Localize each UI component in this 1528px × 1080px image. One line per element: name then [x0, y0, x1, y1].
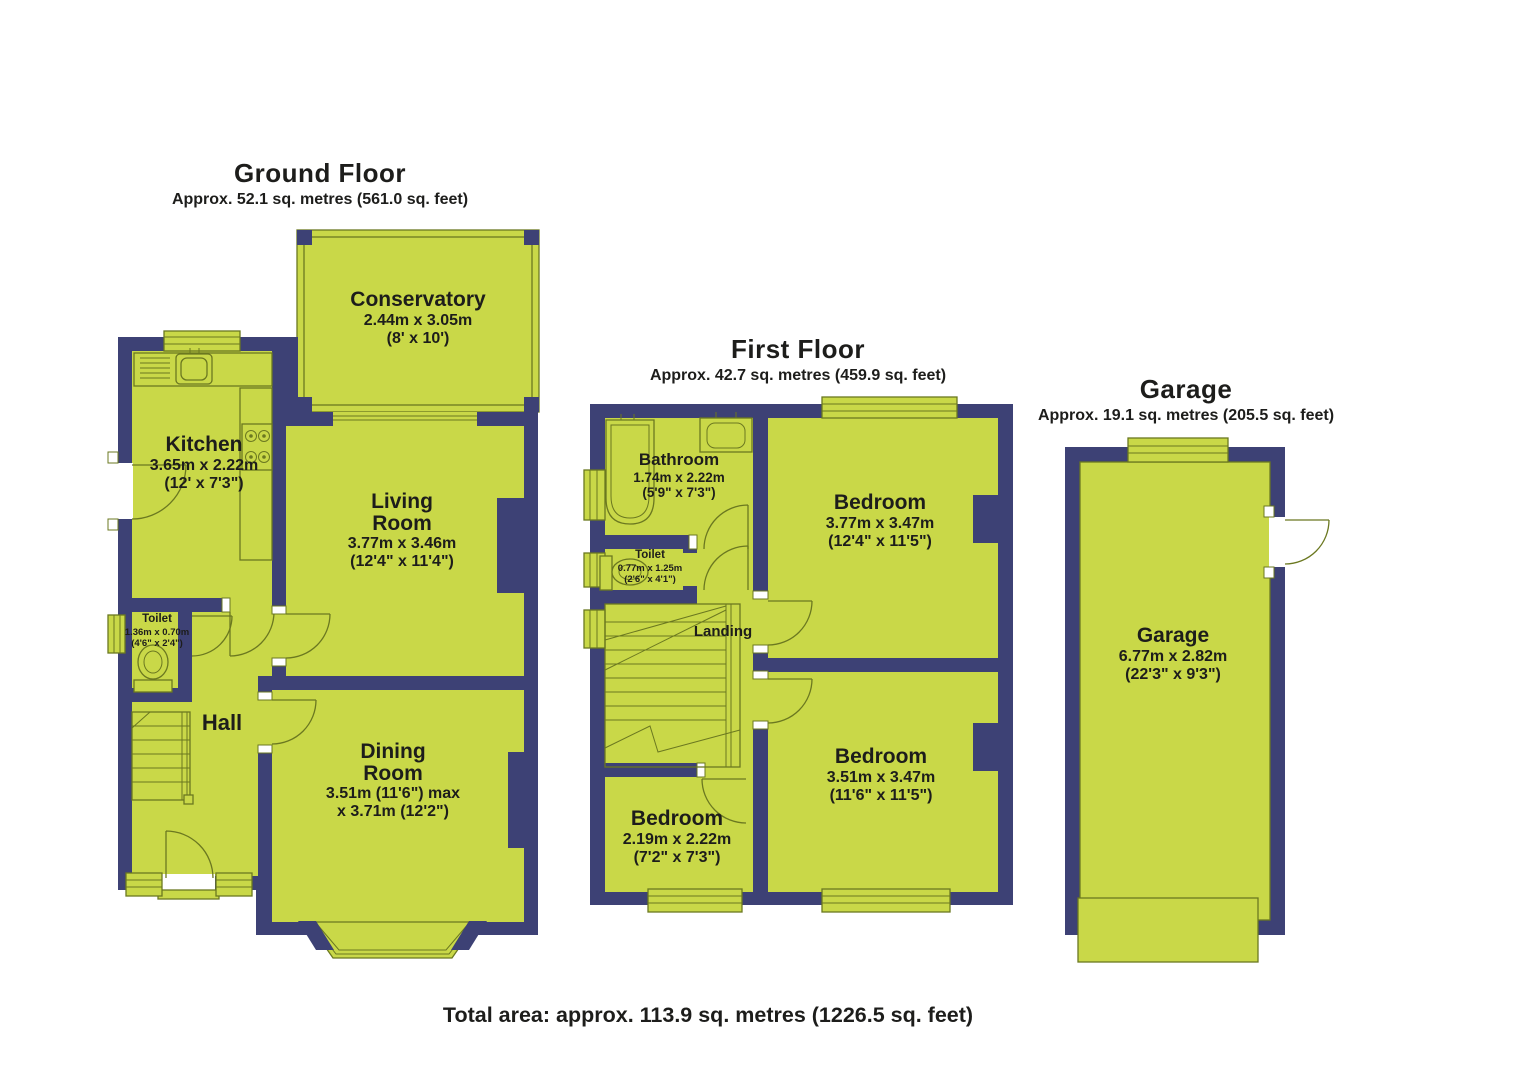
garage-plan [1065, 438, 1329, 962]
room-dimensions: 3.77m x 3.46m (12'4" x 11'4") [348, 535, 457, 571]
hall-front-window-left [126, 873, 162, 896]
bathroom-label: Bathroom 1.74m x 2.22m (5'9" x 7'3") [633, 451, 725, 500]
bedroom-rear-window [822, 889, 950, 912]
bedroom-front-chimney-breast [973, 495, 998, 543]
bedrooms-divider-wall [768, 658, 998, 672]
bedroom-rear-chimney-breast [973, 723, 998, 771]
garage-title: Garage Approx. 19.1 sq. metres (205.5 sq… [1038, 376, 1334, 425]
conservatory-label: Conservatory 2.44m x 3.05m (8' x 10') [350, 289, 485, 348]
dining-room-label: Dining Room 3.51m (11'6") max x 3.71m (1… [326, 741, 460, 822]
small-bedroom-top-wall [590, 763, 705, 777]
room-dimensions: 1.74m x 2.22m (5'9" x 7'3") [633, 470, 725, 501]
room-name: Hall [202, 712, 242, 735]
dining-room-chimney-breast [508, 752, 524, 848]
toilet-window [108, 615, 125, 653]
garage-room-label: Garage 6.77m x 2.82m (22'3" x 9'3") [1119, 625, 1228, 684]
toilet-label-ff: Toilet 0.77m x 1.25m (2'6" x 4'1") [618, 550, 682, 585]
bedroom-front-label: Bedroom 3.77m x 3.47m (12'4" x 11'5") [826, 492, 935, 551]
room-name: Kitchen [150, 434, 259, 456]
garage-main-door [1078, 898, 1258, 962]
total-area-text: Total area: approx. 113.9 sq. metres (12… [443, 1003, 973, 1028]
room-dimensions: 0.77m x 1.25m (2'6" x 4'1") [618, 563, 682, 585]
room-name: Landing [694, 624, 752, 639]
room-name: Bedroom [826, 492, 935, 514]
small-bedroom-window [648, 889, 742, 912]
bathroom-sink [700, 412, 752, 452]
landing-bedroom-divider-wall [753, 418, 768, 892]
room-name: Conservatory [350, 289, 485, 311]
dining-bay-window [298, 921, 487, 958]
garage-window [1128, 438, 1228, 462]
garage-interior [1080, 462, 1270, 920]
room-name: Living Room [348, 491, 457, 534]
kitchen-label: Kitchen 3.65m x 2.22m (12' x 7'3") [150, 434, 259, 493]
room-dimensions: 3.77m x 3.47m (12'4" x 11'5") [826, 515, 935, 551]
landing-label: Landing [694, 624, 752, 639]
plan-title-text: First Floor [650, 336, 946, 363]
room-name: Bedroom [827, 746, 936, 768]
plan-title-text: Ground Floor [172, 160, 468, 187]
toilet-label: Toilet 1.36m x 0.70m (4'6" x 2'4") [125, 614, 189, 649]
floorplan-canvas: Ground Floor Approx. 52.1 sq. metres (56… [0, 0, 1528, 1080]
hall-label: Hall [202, 712, 242, 735]
bedroom-small-label: Bedroom 2.19m x 2.22m (7'2" x 7'3") [623, 808, 732, 867]
toilet-bottom-wall-ff [598, 590, 697, 604]
room-dimensions: 2.19m x 2.22m (7'2" x 7'3") [623, 831, 732, 867]
ground-floor-title: Ground Floor Approx. 52.1 sq. metres (56… [172, 160, 468, 209]
landing-window [584, 610, 605, 648]
plan-subtitle-text: Approx. 52.1 sq. metres (561.0 sq. feet) [172, 190, 468, 209]
bedroom-front-window [822, 397, 957, 418]
room-dimensions: 6.77m x 2.82m (22'3" x 9'3") [1119, 648, 1228, 684]
room-dimensions: 3.51m x 3.47m (11'6" x 11'5") [827, 769, 936, 805]
plan-subtitle-text: Approx. 42.7 sq. metres (459.9 sq. feet) [650, 366, 946, 385]
plan-title-text: Garage [1038, 376, 1334, 403]
room-name: Bathroom [633, 451, 725, 469]
bedroom-rear-label: Bedroom 3.51m x 3.47m (11'6" x 11'5") [827, 746, 936, 805]
plan-subtitle-text: Approx. 19.1 sq. metres (205.5 sq. feet) [1038, 406, 1334, 425]
room-dimensions: 3.65m x 2.22m (12' x 7'3") [150, 457, 259, 493]
hall-front-window-right [216, 873, 252, 896]
room-name: Garage [1119, 625, 1228, 647]
room-name: Toilet [618, 550, 682, 562]
first-floor-title: First Floor Approx. 42.7 sq. metres (459… [650, 336, 946, 385]
room-name: Dining Room [326, 741, 460, 784]
room-dimensions: 3.51m (11'6") max x 3.71m (12'2") [326, 785, 460, 821]
room-dimensions: 1.36m x 0.70m (4'6" x 2'4") [125, 627, 189, 649]
room-dimensions: 2.44m x 3.05m (8' x 10') [350, 312, 485, 348]
living-room-label: Living Room 3.77m x 3.46m (12'4" x 11'4"… [348, 491, 457, 572]
kitchen-window [164, 331, 240, 351]
room-name: Bedroom [623, 808, 732, 830]
living-room-chimney-breast [497, 498, 524, 593]
room-name: Toilet [125, 614, 189, 626]
bathroom-window [584, 470, 605, 520]
bathroom-bottom-wall [598, 535, 697, 549]
garage-side-door [1264, 506, 1329, 578]
